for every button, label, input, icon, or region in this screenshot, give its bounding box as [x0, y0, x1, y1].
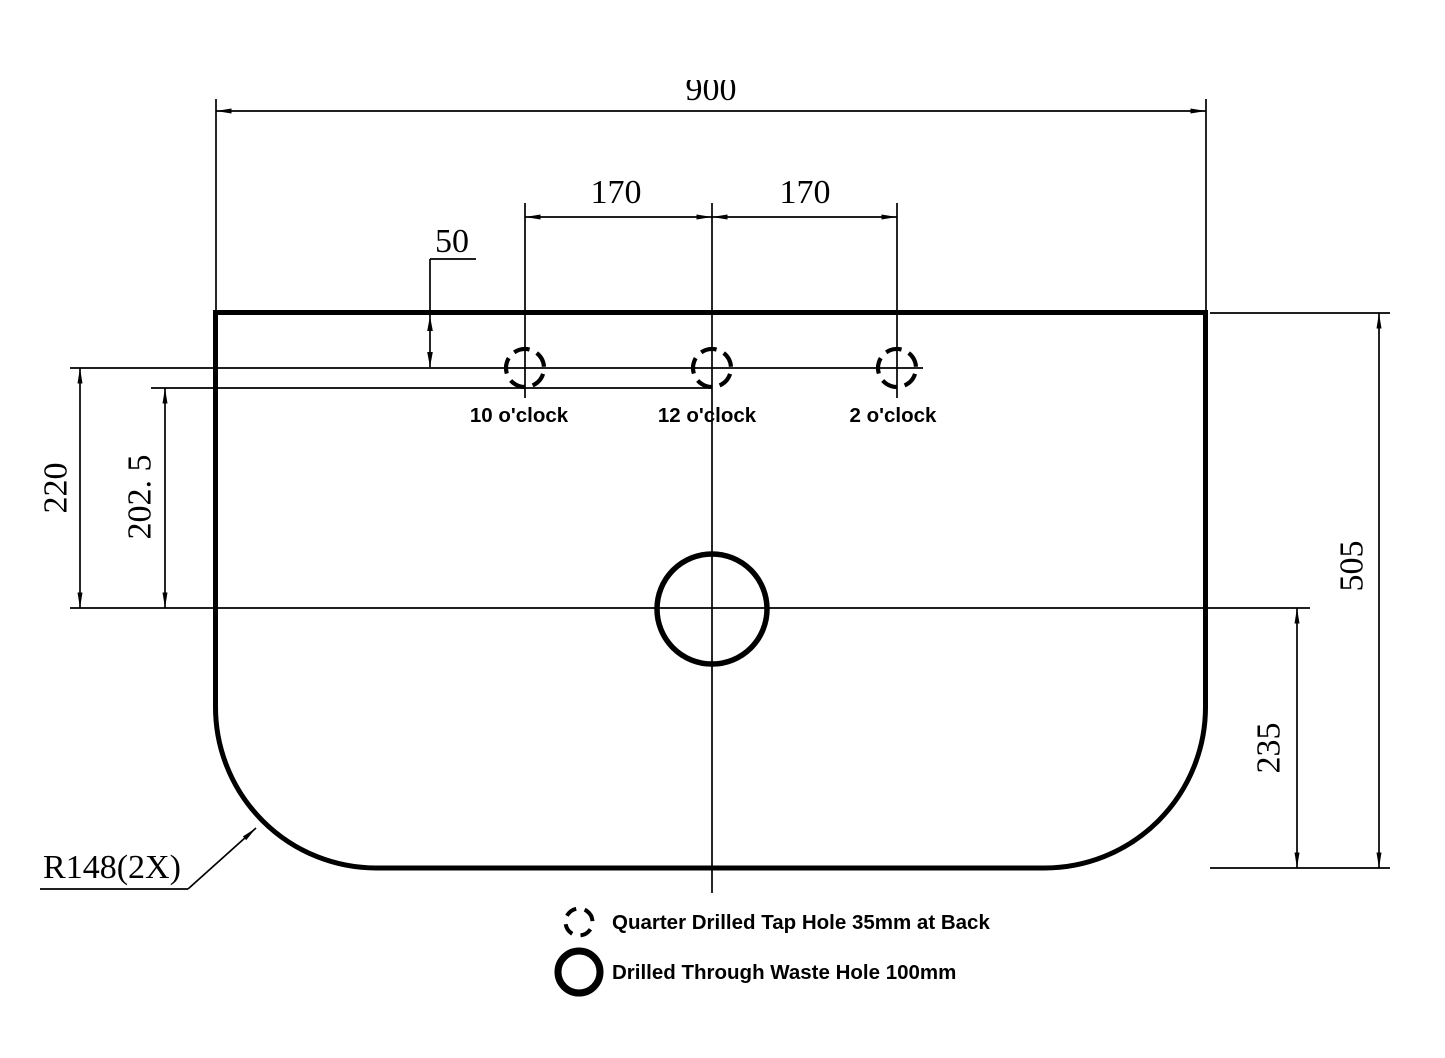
vanity-top-dimension-drawing: 900 170 170 50 220 202. 5 505 235 R148(2…	[0, 0, 1445, 1058]
dimension-text-505: 505	[1334, 541, 1371, 592]
dimension-text-202-5: 202. 5	[122, 455, 159, 540]
arrow-50-down-icon	[427, 352, 433, 367]
dimension-900-clip-artifact	[670, 53, 754, 80]
arrow-50-up-icon	[427, 316, 433, 331]
legend-waste-hole-text: Drilled Through Waste Hole 100mm	[612, 961, 956, 984]
vanity-top-outline	[216, 313, 1206, 869]
dimension-text-r148: R148(2X)	[43, 849, 181, 886]
tap-hole-center-label: 12 o'clock	[658, 404, 757, 427]
legend-tap-hole-icon	[560, 903, 598, 941]
dimension-text-220: 220	[38, 463, 75, 514]
dimension-text-235: 235	[1251, 723, 1288, 774]
technical-drawing-canvas: 900 170 170 50 220 202. 5 505 235 R148(2…	[0, 0, 1445, 1058]
dimension-text-170-right: 170	[780, 174, 831, 211]
dimension-text-50: 50	[435, 223, 469, 260]
legend-waste-hole-icon	[558, 951, 600, 993]
tap-hole-left-label: 10 o'clock	[470, 404, 569, 427]
legend-tap-hole-text: Quarter Drilled Tap Hole 35mm at Back	[612, 911, 990, 934]
tap-hole-right-label: 2 o'clock	[850, 404, 938, 427]
leader-line-r148-arrow	[188, 828, 256, 889]
dimension-text-170-left: 170	[591, 174, 642, 211]
